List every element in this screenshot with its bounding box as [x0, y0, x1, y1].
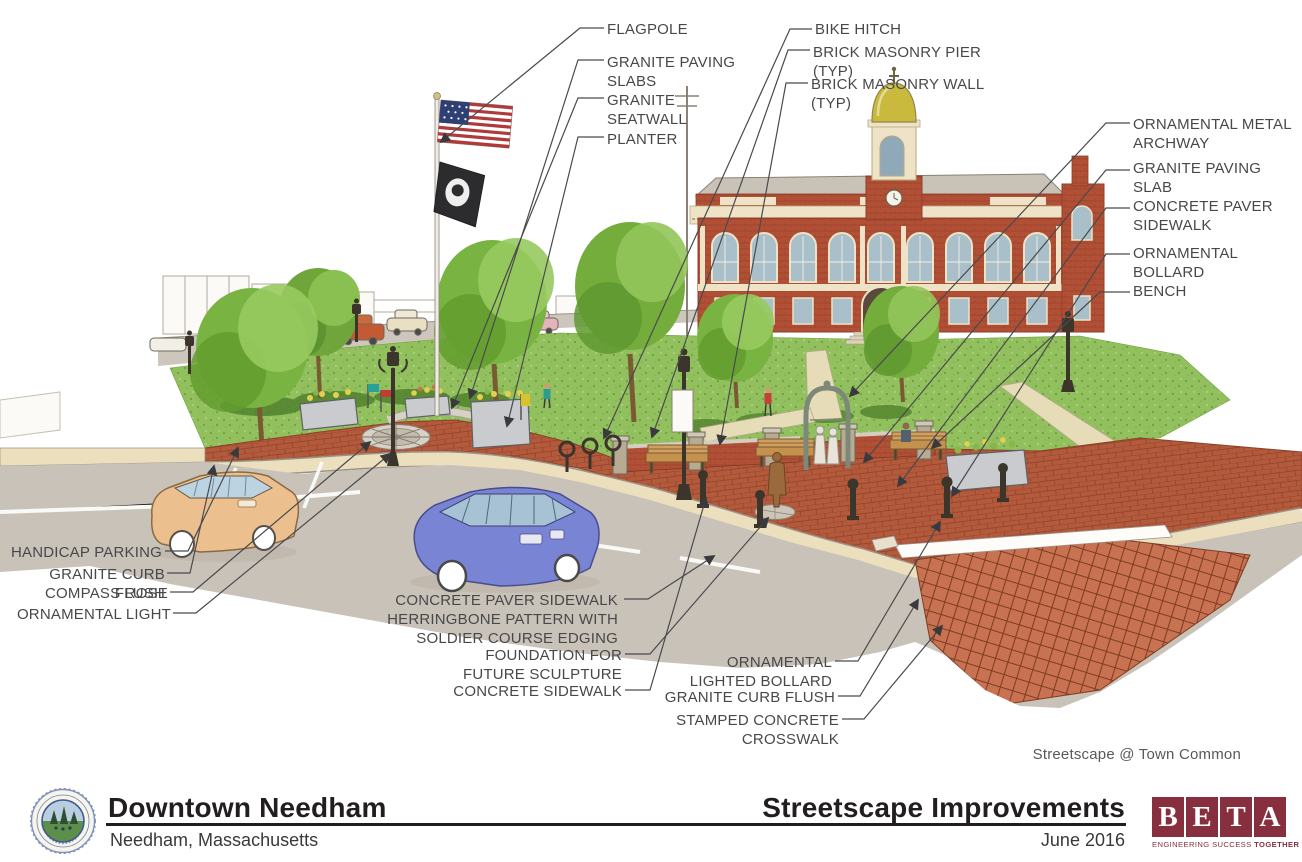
- us-flag: [437, 100, 512, 148]
- callout-bike-hitch: BIKE HITCH: [815, 20, 901, 39]
- right-wing: [1062, 156, 1104, 332]
- callout-handicap-parking: HANDICAP PARKING: [0, 543, 162, 562]
- sheet-date: June 2016: [1041, 830, 1125, 851]
- project-title: Downtown Needham: [108, 792, 387, 824]
- beta-tagline: ENGINEERING SUCCESS TOGETHER: [1152, 840, 1294, 849]
- callout-ornamental-metal-archway: ORNAMENTAL METAL ARCHWAY: [1133, 115, 1292, 153]
- beta-logo: B E T A ENGINEERING SUCCESS TOGETHER: [1152, 797, 1294, 849]
- callout-granite-seatwall: GRANITE SEATWALL: [607, 91, 687, 129]
- beta-tagline-regular: ENGINEERING SUCCESS: [1152, 840, 1252, 849]
- project-subtitle: Needham, Massachusetts: [110, 830, 318, 851]
- beta-logo-squares: B E T A: [1152, 797, 1294, 837]
- callout-flagpole: FLAGPOLE: [607, 20, 688, 39]
- handicap-parked-car: [152, 472, 299, 562]
- image-caption: Streetscape @ Town Common: [900, 746, 1241, 763]
- callout-bench: BENCH: [1133, 282, 1187, 301]
- compass-rose: [362, 425, 430, 450]
- callout-herringbone-sidewalk: CONCRETE PAVER SIDEWALK HERRINGBONE PATT…: [0, 591, 618, 648]
- blue-car: [410, 487, 600, 593]
- beta-letter-e: E: [1186, 797, 1218, 837]
- town-of-needham-seal: [30, 788, 96, 854]
- callout-stamped-concrete-crosswalk: STAMPED CONCRETE CROSSWALK: [0, 711, 839, 749]
- callout-brick-masonry-wall: BRICK MASONRY WALL (TYP): [811, 75, 984, 113]
- callout-granite-paving-slab: GRANITE PAVING SLAB: [1133, 159, 1302, 197]
- parked-car-cream: [387, 310, 427, 335]
- pow-mia-flag: [433, 162, 486, 227]
- beta-letter-t: T: [1220, 797, 1252, 837]
- callout-concrete-paver-sidewalk: CONCRETE PAVER SIDEWALK: [1133, 197, 1273, 235]
- parked-car-white: [150, 338, 186, 351]
- callout-granite-paving-slabs: GRANITE PAVING SLABS: [607, 53, 735, 91]
- callout-ornamental-lighted-bollard: ORNAMENTAL LIGHTED BOLLARD: [0, 653, 832, 691]
- callout-granite-curb-flush-right: GRANITE CURB FLUSH: [0, 688, 835, 707]
- beta-letter-a: A: [1254, 797, 1286, 837]
- sheet-title: Streetscape Improvements: [762, 792, 1125, 824]
- beta-letter-b: B: [1152, 797, 1184, 837]
- beta-tagline-bold: TOGETHER: [1254, 840, 1299, 849]
- callout-planter: PLANTER: [607, 130, 678, 149]
- callout-ornamental-bollard: ORNAMENTAL BOLLARD: [1133, 244, 1238, 282]
